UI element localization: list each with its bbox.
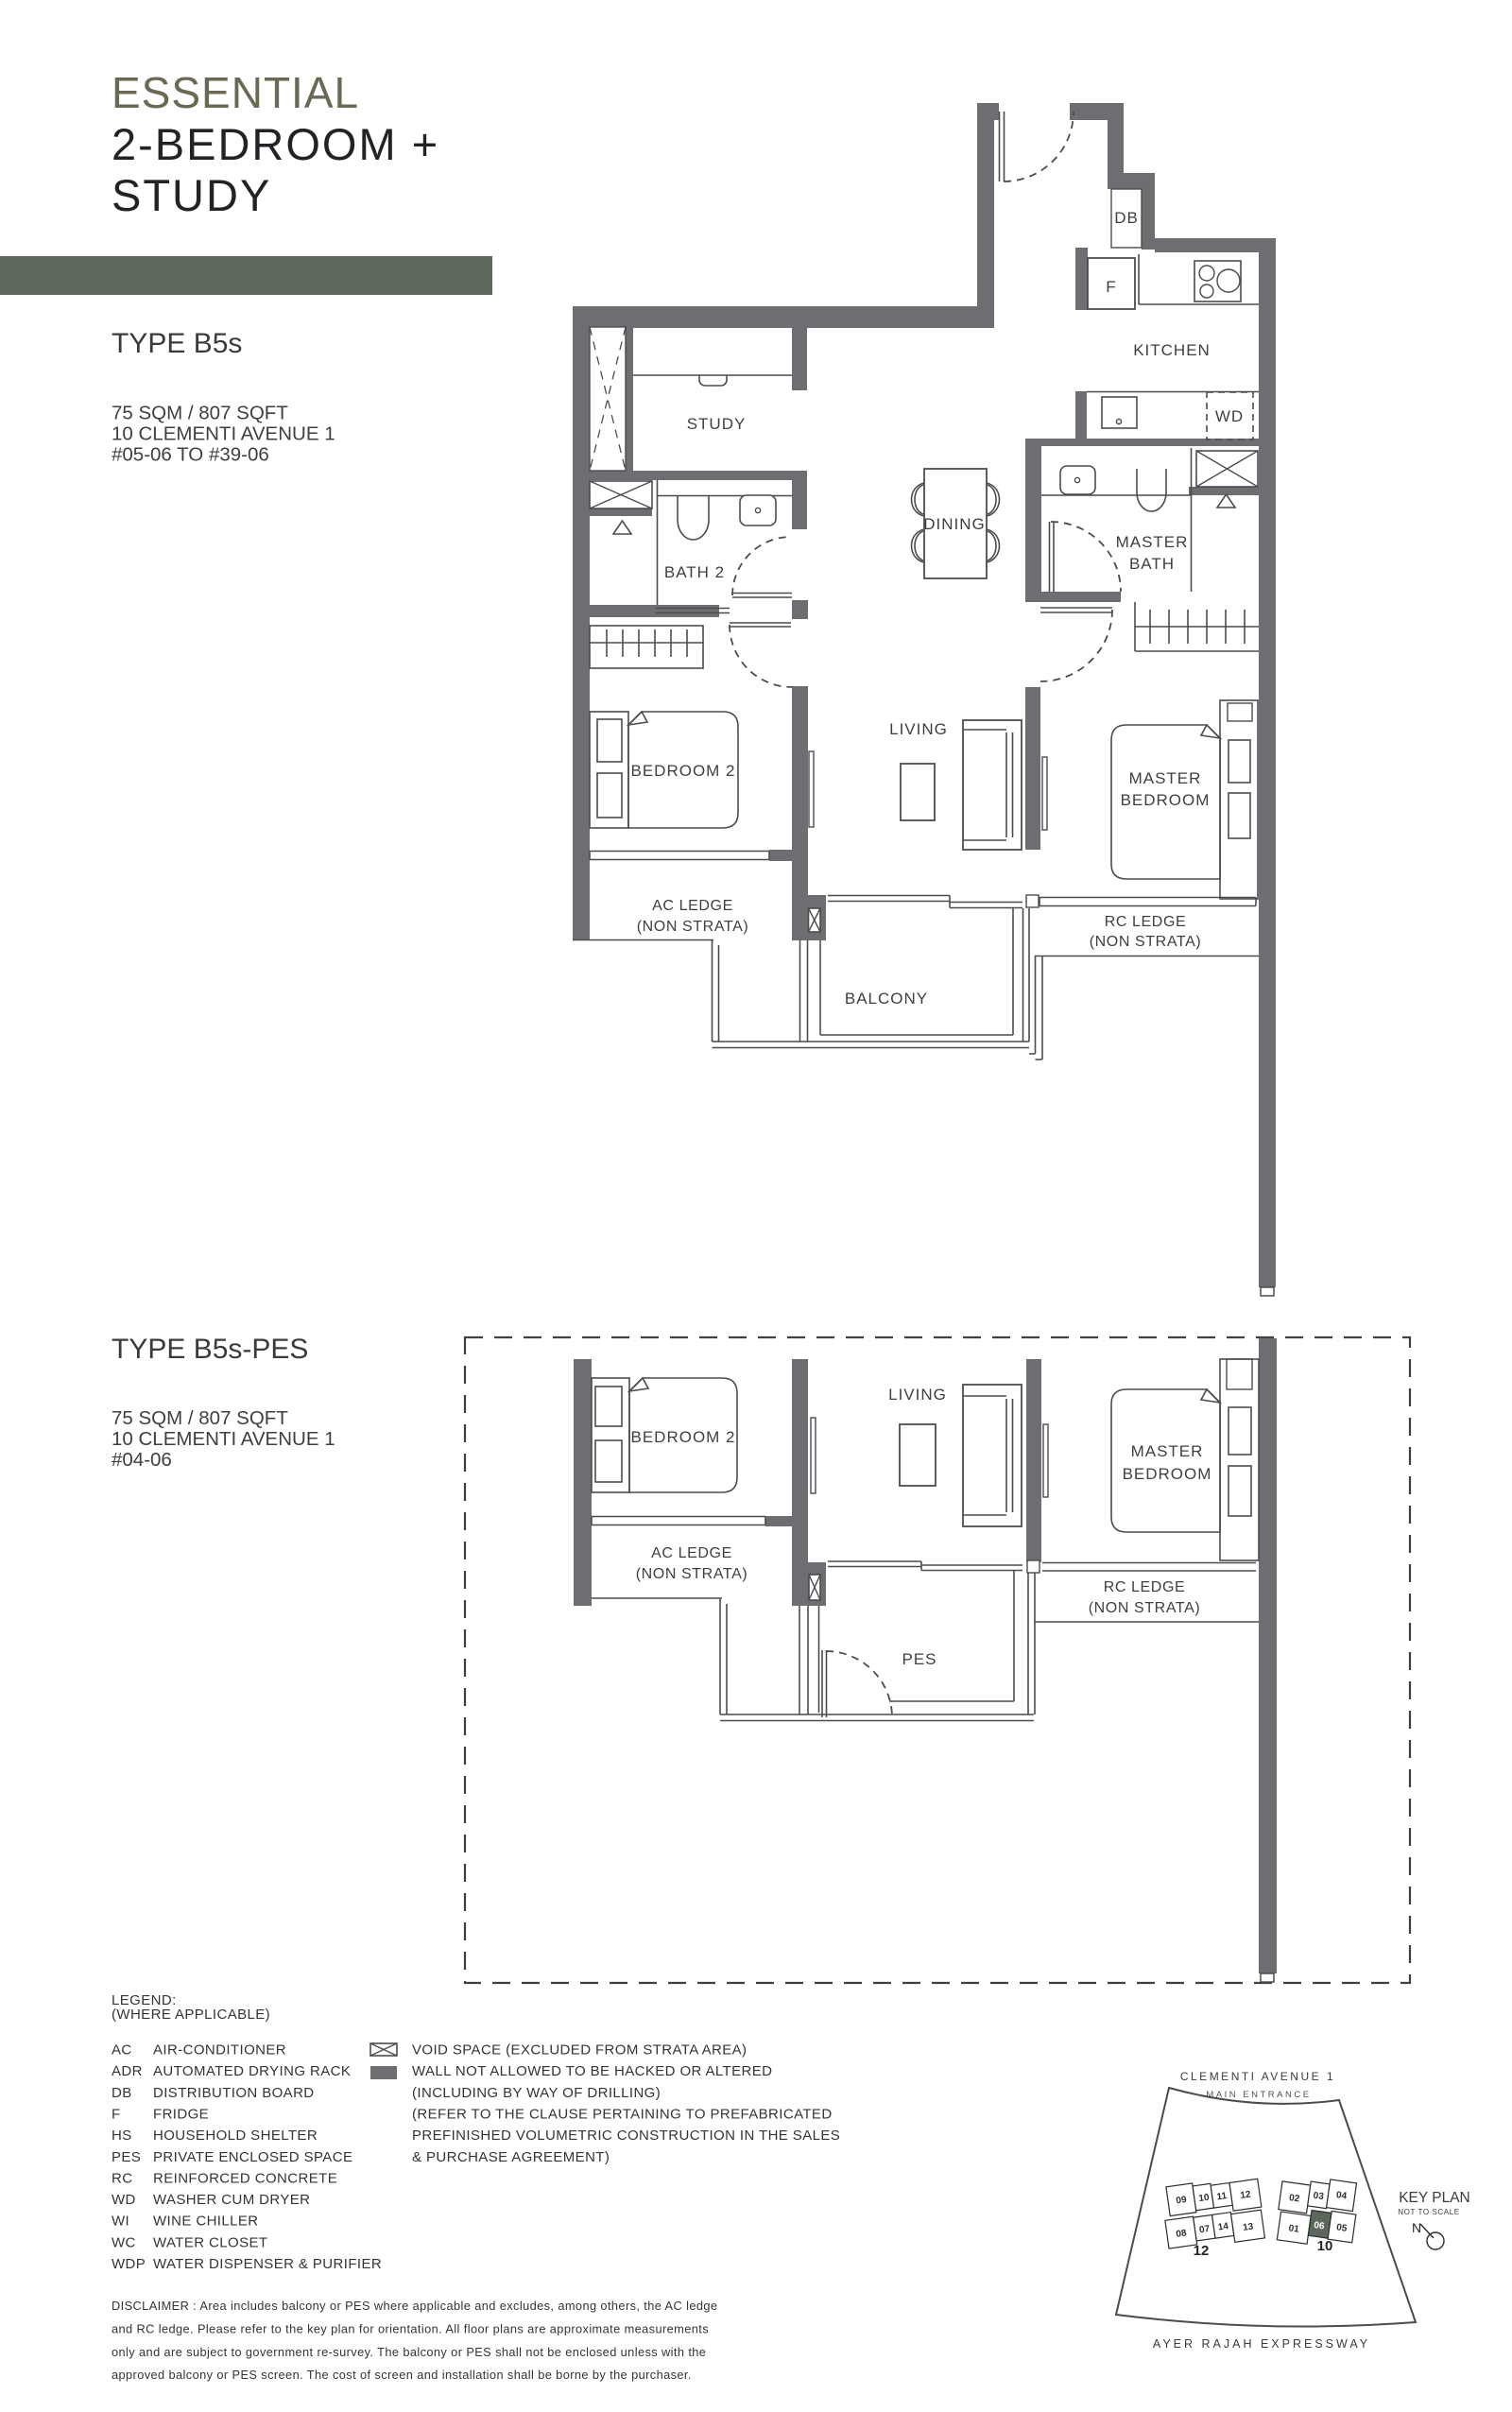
svg-text:PES: PES — [902, 1650, 936, 1668]
svg-text:(NON STRATA): (NON STRATA) — [1089, 1600, 1201, 1616]
svg-text:05: 05 — [1335, 2222, 1348, 2234]
svg-text:BALCONY: BALCONY — [845, 990, 928, 1008]
svg-text:WD: WD — [112, 2192, 136, 2208]
svg-text:WD: WD — [1215, 407, 1244, 425]
svg-text:BEDROOM: BEDROOM — [1123, 1465, 1212, 1483]
svg-text:AUTOMATED DRYING RACK: AUTOMATED DRYING RACK — [153, 2063, 351, 2079]
svg-text:F: F — [112, 2106, 121, 2122]
svg-text:PES: PES — [112, 2149, 141, 2165]
svg-text:& PURCHASE AGREEMENT): & PURCHASE AGREEMENT) — [412, 2149, 610, 2165]
svg-text:STUDY: STUDY — [687, 415, 747, 433]
svg-text:BEDROOM 2: BEDROOM 2 — [630, 1428, 735, 1446]
svg-text:PREFINISHED VOLUMETRIC CONSTRU: PREFINISHED VOLUMETRIC CONSTRUCTION IN T… — [412, 2128, 840, 2144]
svg-text:14: 14 — [1217, 2221, 1229, 2233]
svg-text:PRIVATE ENCLOSED SPACE: PRIVATE ENCLOSED SPACE — [153, 2149, 352, 2165]
svg-text:(NON STRATA): (NON STRATA) — [637, 919, 749, 935]
svg-text:RC: RC — [112, 2170, 132, 2186]
svg-text:AC LEDGE: AC LEDGE — [652, 898, 733, 914]
svg-text:CLEMENTI AVENUE 1: CLEMENTI AVENUE 1 — [1180, 2070, 1335, 2083]
svg-text:LIVING: LIVING — [888, 1386, 947, 1404]
svg-text:KEY PLAN: KEY PLAN — [1399, 2190, 1470, 2206]
svg-text:MASTER: MASTER — [1116, 533, 1189, 551]
svg-text:AIR-CONDITIONER: AIR-CONDITIONER — [153, 2042, 286, 2059]
svg-text:DISTRIBUTION BOARD: DISTRIBUTION BOARD — [153, 2085, 315, 2101]
svg-text:WATER CLOSET: WATER CLOSET — [153, 2234, 267, 2250]
svg-text:(NON STRATA): (NON STRATA) — [1090, 934, 1202, 950]
svg-text:08: 08 — [1176, 2228, 1188, 2240]
svg-text:2-BEDROOM +: 2-BEDROOM + — [112, 119, 439, 169]
svg-text:AC: AC — [112, 2042, 132, 2059]
svg-text:DINING: DINING — [923, 515, 986, 533]
svg-text:WDP: WDP — [112, 2256, 146, 2272]
svg-text:04: 04 — [1335, 2190, 1348, 2202]
svg-text:12: 12 — [1194, 2243, 1210, 2259]
svg-text:RC LEDGE: RC LEDGE — [1104, 1579, 1186, 1595]
svg-text:TYPE B5s: TYPE B5s — [112, 328, 242, 359]
svg-text:11: 11 — [1216, 2191, 1228, 2202]
svg-text:10: 10 — [1198, 2193, 1211, 2205]
svg-text:(REFER TO THE CLAUSE PERTAININ: (REFER TO THE CLAUSE PERTAINING TO PREFA… — [412, 2107, 833, 2123]
svg-text:LIVING: LIVING — [889, 720, 948, 738]
svg-text:75 SQM / 807 SQFT: 75 SQM / 807 SQFT — [112, 1407, 288, 1429]
svg-text:DB: DB — [112, 2085, 132, 2101]
svg-text:DB: DB — [1114, 209, 1139, 227]
svg-text:WI: WI — [112, 2214, 129, 2230]
svg-text:#04-06: #04-06 — [112, 1449, 172, 1471]
svg-text:13: 13 — [1242, 2221, 1254, 2233]
svg-text:10 CLEMENTI AVENUE 1: 10 CLEMENTI AVENUE 1 — [112, 423, 335, 445]
svg-text:NOT TO SCALE: NOT TO SCALE — [1398, 2208, 1459, 2216]
svg-text:12: 12 — [1240, 2189, 1252, 2201]
svg-text:10 CLEMENTI AVENUE 1: 10 CLEMENTI AVENUE 1 — [112, 1428, 335, 1450]
svg-text:WATER DISPENSER & PURIFIER: WATER DISPENSER & PURIFIER — [153, 2256, 382, 2272]
svg-text:BATH: BATH — [1129, 555, 1175, 573]
svg-text:HOUSEHOLD SHELTER: HOUSEHOLD SHELTER — [153, 2128, 318, 2144]
svg-text:AC LEDGE: AC LEDGE — [651, 1545, 732, 1561]
svg-text:WALL NOT ALLOWED TO BE HACKED: WALL NOT ALLOWED TO BE HACKED OR ALTERED — [412, 2063, 772, 2079]
svg-text:BEDROOM 2: BEDROOM 2 — [630, 762, 735, 780]
svg-text:07: 07 — [1198, 2224, 1211, 2236]
svg-text:DISCLAIMER : Area includes bal: DISCLAIMER : Area includes balcony or PE… — [112, 2299, 717, 2313]
svg-text:#05-06 TO #39-06: #05-06 TO #39-06 — [112, 444, 269, 466]
svg-text:approved balcony or PES screen: approved balcony or PES screen. The cost… — [112, 2368, 692, 2382]
svg-text:WC: WC — [112, 2234, 136, 2250]
svg-text:REINFORCED CONCRETE: REINFORCED CONCRETE — [153, 2170, 337, 2186]
svg-text:HS: HS — [112, 2128, 132, 2144]
svg-text:(INCLUDING BY WAY OF DRILLING): (INCLUDING BY WAY OF DRILLING) — [412, 2085, 661, 2101]
svg-text:N: N — [1412, 2220, 1421, 2235]
svg-text:BATH 2: BATH 2 — [664, 563, 725, 581]
svg-text:and RC ledge. Please refer to: and RC ledge. Please refer to the key pl… — [112, 2321, 709, 2335]
svg-text:75 SQM / 807 SQFT: 75 SQM / 807 SQFT — [112, 403, 288, 424]
svg-text:06: 06 — [1314, 2220, 1326, 2232]
svg-text:AYER RAJAH EXPRESSWAY: AYER RAJAH EXPRESSWAY — [1153, 2337, 1370, 2351]
svg-text:02: 02 — [1288, 2193, 1300, 2205]
svg-text:ESSENTIAL: ESSENTIAL — [112, 68, 359, 117]
svg-text:(NON STRATA): (NON STRATA) — [636, 1566, 748, 1582]
svg-text:03: 03 — [1313, 2191, 1325, 2203]
svg-text:KITCHEN: KITCHEN — [1133, 341, 1211, 359]
svg-text:MASTER: MASTER — [1129, 769, 1202, 787]
svg-text:09: 09 — [1176, 2195, 1188, 2207]
svg-text:WASHER CUM DRYER: WASHER CUM DRYER — [153, 2192, 310, 2208]
svg-text:VOID SPACE (EXCLUDED FROM STRA: VOID SPACE (EXCLUDED FROM STRATA AREA) — [412, 2042, 747, 2059]
svg-text:01: 01 — [1288, 2223, 1300, 2235]
svg-text:RC LEDGE: RC LEDGE — [1105, 914, 1187, 930]
svg-text:ADR: ADR — [112, 2063, 143, 2079]
svg-text:TYPE B5s-PES: TYPE B5s-PES — [112, 1334, 308, 1365]
svg-text:BEDROOM: BEDROOM — [1121, 791, 1211, 809]
svg-text:(WHERE APPLICABLE): (WHERE APPLICABLE) — [112, 2007, 270, 2023]
svg-text:STUDY: STUDY — [112, 170, 271, 220]
svg-text:F: F — [1106, 278, 1116, 296]
svg-text:only and are subject to govern: only and are subject to government re-su… — [112, 2345, 706, 2359]
svg-text:WINE CHILLER: WINE CHILLER — [153, 2214, 259, 2230]
svg-text:FRIDGE: FRIDGE — [153, 2106, 209, 2122]
svg-text:10: 10 — [1317, 2238, 1333, 2254]
svg-text:MASTER: MASTER — [1131, 1442, 1204, 1460]
